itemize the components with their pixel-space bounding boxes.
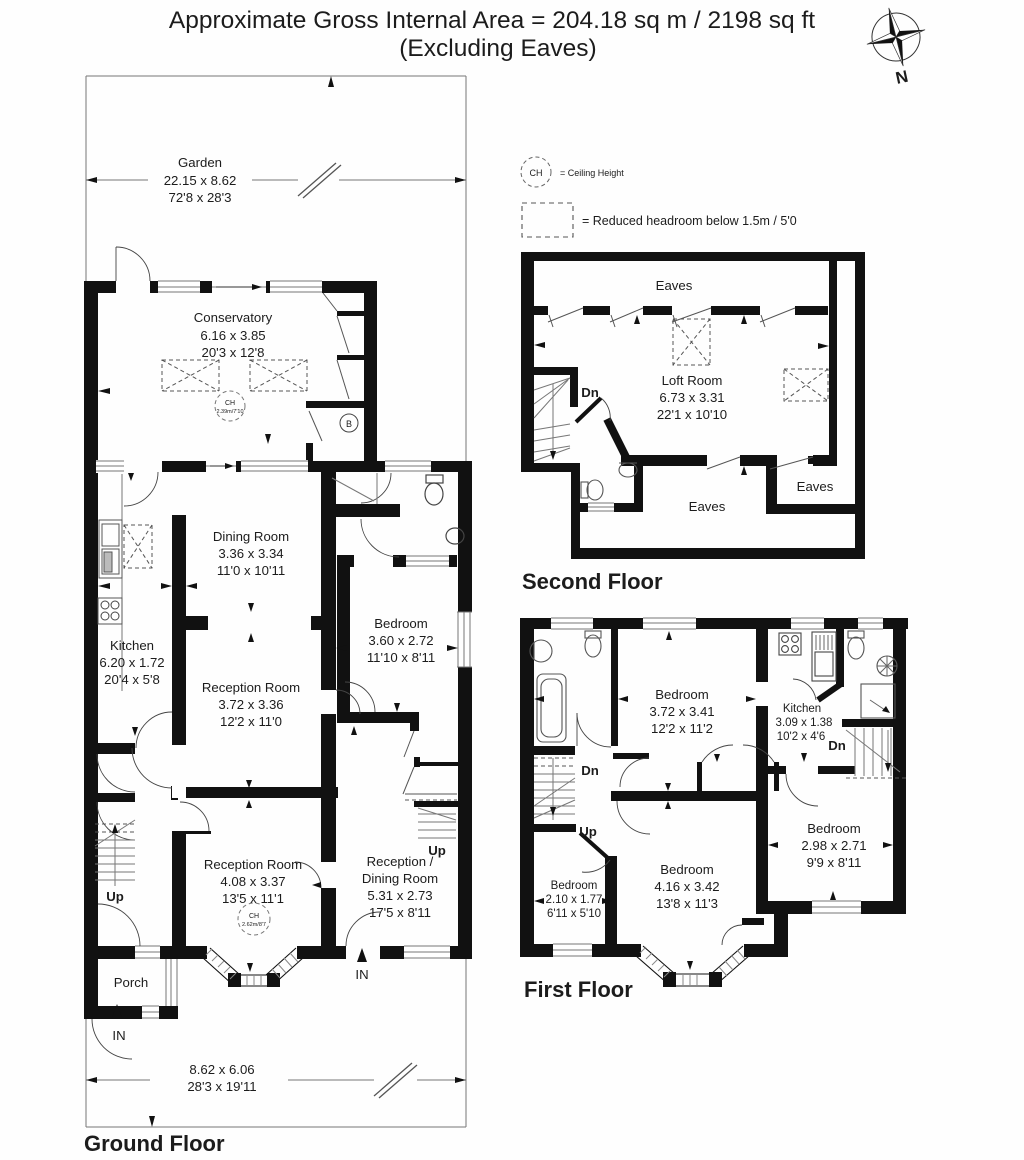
svg-text:20'4 x 5'8: 20'4 x 5'8 <box>104 672 160 687</box>
svg-text:4.08 x 3.37: 4.08 x 3.37 <box>220 874 285 889</box>
svg-text:IN: IN <box>355 967 368 982</box>
svg-text:CH: CH <box>225 400 235 407</box>
svg-text:3.60 x 2.72: 3.60 x 2.72 <box>368 633 433 648</box>
svg-text:10'2 x 4'6: 10'2 x 4'6 <box>777 731 826 743</box>
svg-text:17'5 x 8'11: 17'5 x 8'11 <box>369 905 431 920</box>
svg-text:CH: CH <box>249 913 259 920</box>
svg-text:Bedroom: Bedroom <box>655 687 709 702</box>
svg-text:6'11 x 5'10: 6'11 x 5'10 <box>547 908 601 920</box>
svg-text:6.16 x 3.85: 6.16 x 3.85 <box>200 328 265 343</box>
svg-text:Kitchen: Kitchen <box>110 638 154 653</box>
svg-text:Up: Up <box>106 889 124 904</box>
svg-text:13'8 x 11'3: 13'8 x 11'3 <box>656 896 718 911</box>
svg-text:3.09 x 1.38: 3.09 x 1.38 <box>776 717 833 729</box>
svg-text:Up: Up <box>579 824 597 839</box>
svg-text:9'9 x 8'11: 9'9 x 8'11 <box>807 855 862 870</box>
svg-text:2.10 x 1.77: 2.10 x 1.77 <box>546 894 603 906</box>
svg-text:Porch: Porch <box>114 975 148 990</box>
svg-text:Bedroom: Bedroom <box>807 821 861 836</box>
svg-text:20'3 x 12'8: 20'3 x 12'8 <box>202 345 265 360</box>
svg-text:Dining Room: Dining Room <box>362 871 438 886</box>
svg-text:11'10 x 8'11: 11'10 x 8'11 <box>367 650 435 665</box>
svg-text:IN: IN <box>112 1028 125 1043</box>
svg-text:2.98 x 2.71: 2.98 x 2.71 <box>801 838 866 853</box>
svg-text:Bedroom: Bedroom <box>551 880 598 892</box>
svg-text:Dining Room: Dining Room <box>213 529 289 544</box>
svg-text:Up: Up <box>428 843 446 858</box>
svg-text:= Ceiling Height: = Ceiling Height <box>560 168 624 178</box>
svg-text:72'8 x 28'3: 72'8 x 28'3 <box>169 190 232 205</box>
svg-text:5.31 x 2.73: 5.31 x 2.73 <box>367 888 432 903</box>
svg-text:Garden: Garden <box>178 155 222 170</box>
svg-text:Dn: Dn <box>828 738 846 753</box>
svg-text:Dn: Dn <box>581 385 599 400</box>
svg-text:22.15 x 8.62: 22.15 x 8.62 <box>164 173 237 188</box>
svg-text:2.39m/7'10: 2.39m/7'10 <box>216 409 243 415</box>
svg-text:11'0 x 10'11: 11'0 x 10'11 <box>217 563 285 578</box>
svg-text:28'3 x 19'11: 28'3 x 19'11 <box>187 1079 256 1094</box>
svg-text:Bedroom: Bedroom <box>374 616 428 631</box>
svg-text:Conservatory: Conservatory <box>194 310 273 325</box>
svg-text:Ground Floor: Ground Floor <box>84 1131 225 1156</box>
svg-text:3.72 x 3.41: 3.72 x 3.41 <box>649 704 714 719</box>
svg-text:Loft Room: Loft Room <box>662 373 723 388</box>
svg-text:(Excluding Eaves): (Excluding Eaves) <box>399 35 596 62</box>
svg-text:3.72 x 3.36: 3.72 x 3.36 <box>218 697 283 712</box>
svg-text:Kitchen: Kitchen <box>783 703 821 715</box>
svg-text:CH: CH <box>530 168 543 178</box>
svg-text:Second Floor: Second Floor <box>522 569 663 594</box>
svg-text:4.16 x 3.42: 4.16 x 3.42 <box>654 879 719 894</box>
svg-text:First Floor: First Floor <box>524 977 633 1002</box>
svg-text:12'2 x 11'2: 12'2 x 11'2 <box>651 721 713 736</box>
svg-text:6.20 x 1.72: 6.20 x 1.72 <box>99 655 164 670</box>
svg-text:= Reduced headroom below 1.5m: = Reduced headroom below 1.5m / 5'0 <box>582 214 797 228</box>
svg-text:8.62 x 6.06: 8.62 x 6.06 <box>189 1062 254 1077</box>
svg-text:Bedroom: Bedroom <box>660 862 714 877</box>
svg-text:3.36 x 3.34: 3.36 x 3.34 <box>218 546 283 561</box>
svg-text:13'5 x 11'1: 13'5 x 11'1 <box>222 891 284 906</box>
svg-text:Reception Room: Reception Room <box>204 857 302 872</box>
svg-text:Reception /: Reception / <box>367 854 434 869</box>
svg-text:2.62m/8'7: 2.62m/8'7 <box>242 922 266 928</box>
svg-text:Eaves: Eaves <box>797 479 834 494</box>
svg-text:Eaves: Eaves <box>656 278 693 293</box>
svg-text:Eaves: Eaves <box>689 499 726 514</box>
svg-text:B: B <box>346 419 352 429</box>
svg-text:Dn: Dn <box>581 763 599 778</box>
svg-text:Reception Room: Reception Room <box>202 680 300 695</box>
svg-text:22'1 x 10'10: 22'1 x 10'10 <box>657 407 727 422</box>
svg-text:12'2 x 11'0: 12'2 x 11'0 <box>220 714 282 729</box>
svg-text:6.73 x 3.31: 6.73 x 3.31 <box>659 390 724 405</box>
svg-text:Approximate Gross Internal Are: Approximate Gross Internal Area = 204.18… <box>169 7 815 34</box>
